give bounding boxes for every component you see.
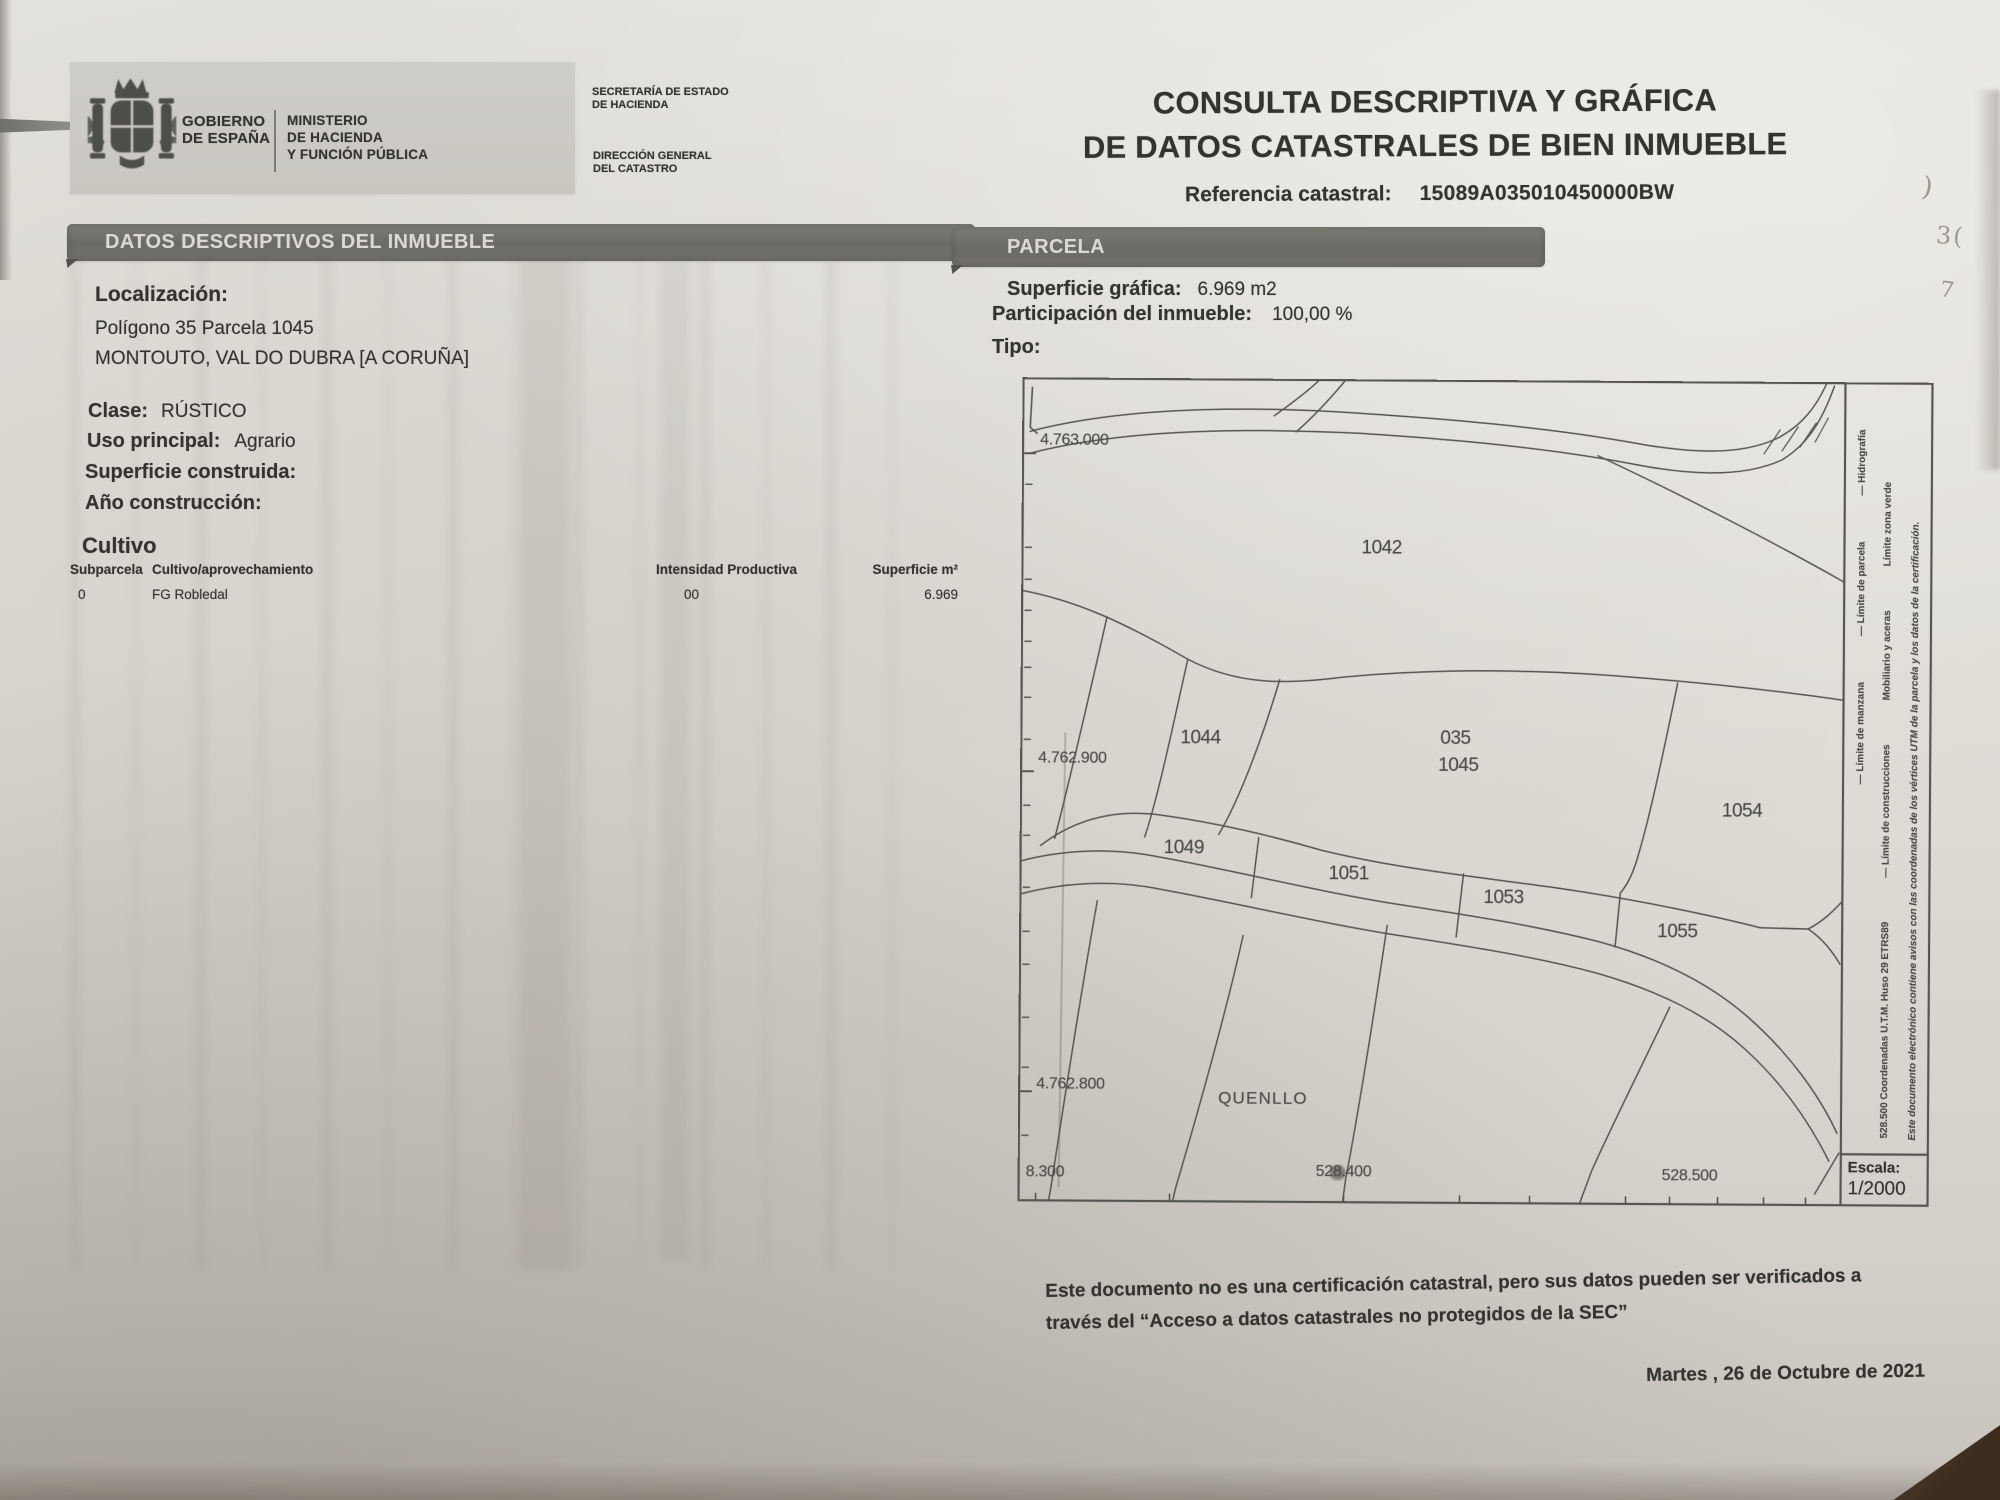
- parcela-bar-label: PARCELA: [1007, 236, 1105, 259]
- parcel-label-035: 035: [1440, 728, 1470, 750]
- tipo-label: Tipo:: [992, 336, 1041, 359]
- title-line-2: DE DATOS CATASTRALES DE BIEN INMUEBLE: [1020, 122, 1850, 170]
- col-header-cultivo: Cultivo/aprovechamiento: [152, 562, 313, 577]
- uso-row: Uso principal: Agrario: [87, 430, 296, 453]
- parcel-label-1049: 1049: [1164, 837, 1204, 859]
- referencia-catastral-row: Referencia catastral: 15089A035010450000…: [1185, 181, 1674, 208]
- participacion-label: Participación del inmueble:: [992, 303, 1252, 326]
- paper-edge-shadow-left: [0, 0, 12, 280]
- x-axis-label: 528.500: [1662, 1167, 1718, 1185]
- parcel-boundaries: [1019, 452, 1845, 964]
- col-header-intensidad: Intensidad Productiva: [656, 562, 797, 577]
- legend-limite-manzana: — Límite de manzana: [1855, 682, 1867, 784]
- road-lines: [1030, 377, 1835, 473]
- parcel-label-1054: 1054: [1722, 801, 1762, 823]
- paper-edge-shadow-right: [1976, 90, 2000, 470]
- handwritten-mark: 3(: [1935, 221, 1966, 251]
- uso-value: Agrario: [234, 430, 295, 453]
- axis-ticks: [1021, 387, 1811, 1204]
- cell-superficie: 6.969: [826, 587, 958, 602]
- place-label-quenllo: QUENLLO: [1218, 1088, 1308, 1109]
- photographed-cadastral-document: { "doc": { "logo": { "gobierno": "GOBIER…: [0, 0, 2000, 1500]
- legend-coordenadas-utm: 528.500 Coordenadas U.T.M. Huso 29 ETRS8…: [1878, 922, 1890, 1139]
- clase-label: Clase:: [88, 400, 148, 423]
- localizacion-label: Localización:: [95, 283, 228, 307]
- legend-column-3: Este documento electrónico contiene avis…: [1900, 391, 1929, 1153]
- legend-column-2: 528.500 Coordenadas U.T.M. Huso 29 ETRS8…: [1872, 390, 1901, 1152]
- referencia-label: Referencia catastral:: [1185, 182, 1392, 207]
- x-axis-label: 8.300: [1026, 1163, 1065, 1181]
- spain-coat-of-arms-icon: [86, 70, 178, 186]
- anio-construccion-label: Año construcción:: [85, 492, 262, 515]
- parcel-label-1044: 1044: [1180, 727, 1220, 749]
- escala-label: Escala:: [1848, 1159, 1901, 1176]
- uso-label: Uso principal:: [87, 430, 220, 453]
- cadastral-map: 4.763.000 4.762.900 4.762.800 8.300 528.…: [1017, 377, 1934, 1208]
- cultivo-title: Cultivo: [82, 533, 157, 559]
- parcela-bar: PARCELA: [952, 227, 1545, 267]
- participacion-row: Participación del inmueble: 100,00 %: [992, 303, 1352, 326]
- datos-descriptivos-bar: DATOS DESCRIPTIVOS DEL INMUEBLE: [67, 224, 975, 261]
- clase-row: Clase: RÚSTICO: [88, 400, 247, 423]
- legend-limite-zona-verde: Límite zona verde: [1882, 482, 1894, 567]
- legend-mobiliario-aceras: Mobiliario y aceras: [1881, 610, 1893, 700]
- title-line-1: CONSULTA DESCRIPTIVA Y GRÁFICA: [1020, 78, 1850, 126]
- superficie-grafica-row: Superficie gráfica: 6.969 m2: [1007, 278, 1277, 301]
- legend-certification-note: Este documento electrónico contiene avis…: [1906, 522, 1921, 1141]
- ministerio-label: MINISTERIO DE HACIENDA Y FUNCIÓN PÚBLICA: [287, 112, 428, 163]
- escala-value: 1/2000: [1848, 1178, 1906, 1200]
- legend-limite-construcciones: — Límite de construcciones: [1880, 744, 1892, 877]
- superficie-grafica-value: 6.969 m2: [1198, 278, 1277, 301]
- parcel-label-1045: 1045: [1438, 755, 1478, 777]
- map-linework: [1017, 377, 1934, 1208]
- referencia-value: 15089A035010450000BW: [1420, 181, 1675, 206]
- clase-value: RÚSTICO: [161, 400, 247, 423]
- gobierno-label: GOBIERNO DE ESPAÑA: [182, 113, 270, 147]
- parcel-label-1053: 1053: [1483, 887, 1523, 909]
- participacion-value: 100,00 %: [1272, 303, 1352, 326]
- datos-descriptivos-bar-label: DATOS DESCRIPTIVOS DEL INMUEBLE: [105, 231, 495, 254]
- logo-divider: [274, 110, 276, 172]
- bottom-edge-shadow: [0, 1462, 2000, 1500]
- cell-cultivo: FG Robledal: [152, 587, 228, 602]
- superficie-construida-label: Superficie construida:: [85, 461, 296, 484]
- secretaria-label: SECRETARÍA DE ESTADO DE HACIENDA: [592, 86, 729, 112]
- superficie-grafica-label: Superficie gráfica:: [1007, 278, 1182, 301]
- y-axis-label: 4.762.800: [1036, 1075, 1105, 1093]
- legend-limite-parcela: — Límite de parcela: [1855, 542, 1867, 637]
- x-axis-label: 528.400: [1316, 1163, 1372, 1181]
- map-frame: [1019, 378, 1933, 1206]
- y-axis-label: 4.762.900: [1038, 749, 1107, 767]
- direccion-label: DIRECCIÓN GENERAL DEL CATASTRO: [593, 150, 712, 176]
- document-title: CONSULTA DESCRIPTIVA Y GRÁFICA DE DATOS …: [1020, 78, 1850, 170]
- cell-subparcela: 0: [78, 587, 86, 602]
- legend-hidrografia: — Hidrografía: [1856, 429, 1867, 495]
- parcel-label-1051: 1051: [1328, 863, 1368, 885]
- localizacion-line-1: Polígono 35 Parcela 1045: [95, 318, 314, 340]
- legend-column-1: — Límite de manzana — Límite de parcela …: [1846, 390, 1875, 1152]
- parcel-label-1055: 1055: [1657, 921, 1697, 943]
- y-axis-label: 4.763.000: [1040, 431, 1109, 449]
- cell-intensidad: 00: [684, 587, 699, 602]
- col-header-superficie: Superficie m²: [826, 562, 958, 577]
- col-header-subparcela: Subparcela: [70, 562, 143, 577]
- parcel-label-1042: 1042: [1361, 537, 1401, 559]
- lower-roads-and-fields: [1018, 850, 1841, 1205]
- localizacion-line-2: MONTOUTO, VAL DO DUBRA [A CORUÑA]: [95, 348, 469, 370]
